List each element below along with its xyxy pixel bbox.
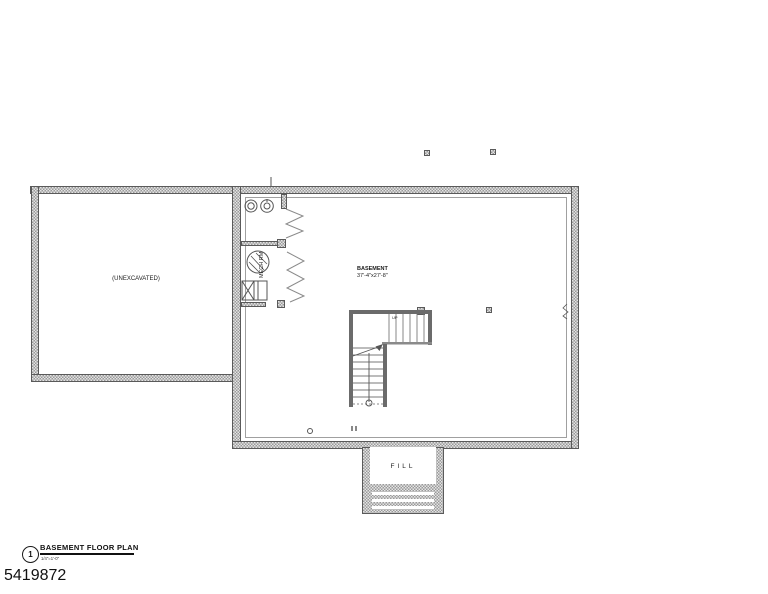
floor-drain-symbol bbox=[308, 429, 313, 434]
linework-overlay bbox=[0, 0, 768, 594]
stair-right-wall bbox=[428, 310, 432, 345]
water-heater-symbol bbox=[247, 251, 269, 273]
stair-direction-label: UP bbox=[392, 316, 398, 321]
plan-title-underline bbox=[40, 553, 134, 555]
basement-dimensions: 37'-4"x27'-8" bbox=[357, 273, 388, 279]
mech-room-label: MECH RM bbox=[259, 252, 265, 278]
stairs bbox=[349, 310, 432, 407]
sump-pump-symbol-inner bbox=[248, 203, 254, 209]
plan-title: BASEMENT FLOOR PLAN bbox=[40, 543, 139, 552]
stair-upper-run-edge bbox=[382, 342, 432, 345]
sump-pump-symbol bbox=[245, 200, 257, 212]
fill-label: FILL bbox=[372, 463, 434, 470]
floor-plan-canvas: (UNEXCAVATED) BASEMENT 37'-4"x27'-8" MEC… bbox=[0, 0, 768, 594]
stair-left-stringer bbox=[349, 310, 353, 407]
sheet-reference-bubble: 1 bbox=[22, 546, 39, 563]
door-zigzag-lower bbox=[287, 252, 304, 302]
furnace-symbol bbox=[242, 281, 267, 300]
ejector-pump-symbol-inner bbox=[264, 203, 270, 209]
plan-scale: 1/4"=1'-0" bbox=[41, 556, 59, 561]
stair-mid-stringer bbox=[383, 344, 387, 407]
door-zigzag-upper bbox=[286, 209, 303, 238]
sheet-reference-number: 1 bbox=[28, 550, 32, 559]
drawing-number: 5419872 bbox=[4, 567, 66, 585]
beam-tick-marks bbox=[352, 426, 356, 431]
stair-top-wall bbox=[349, 310, 432, 314]
stair-treads-lower bbox=[353, 348, 383, 397]
basement-label: BASEMENT bbox=[357, 266, 388, 272]
panel-squiggle-symbol bbox=[563, 304, 568, 319]
unexcavated-label: (UNEXCAVATED) bbox=[96, 276, 176, 283]
